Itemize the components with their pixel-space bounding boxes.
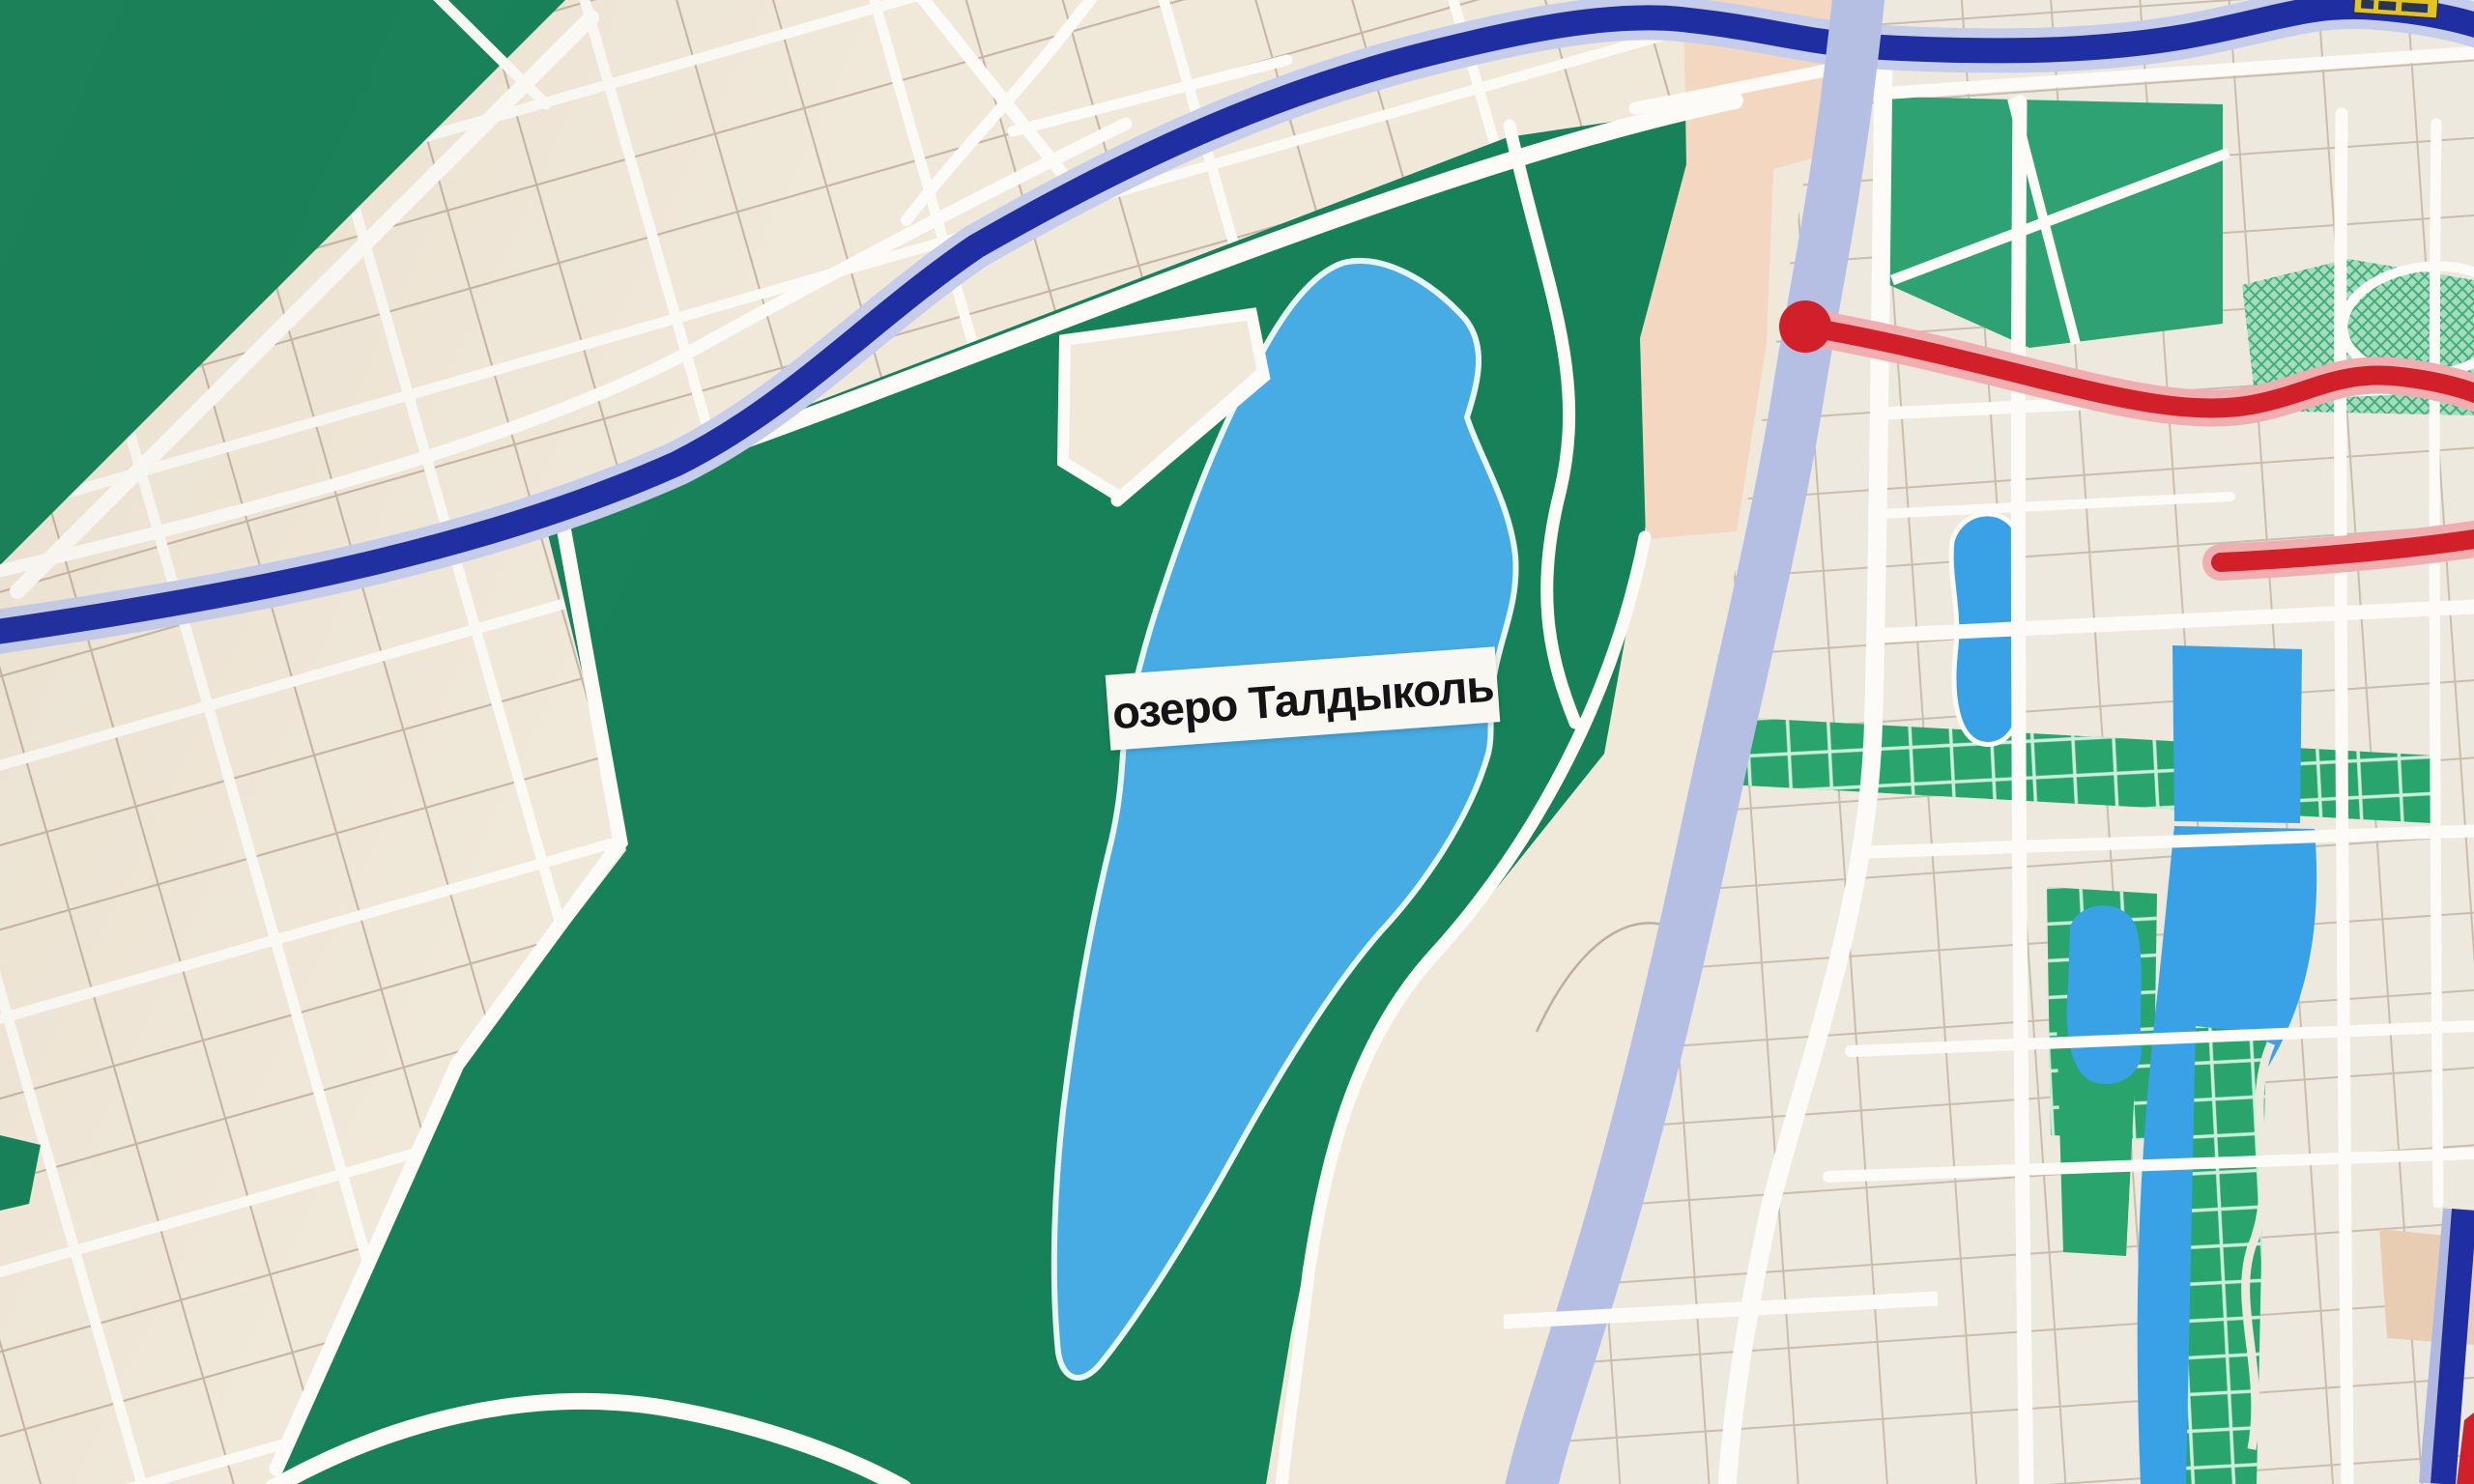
road-east-vertical-4 xyxy=(2434,124,2438,1203)
road-east-vertical-2 xyxy=(2018,102,2027,1484)
road-east-vertical-3 xyxy=(2341,114,2347,1484)
map-artwork xyxy=(0,0,2474,1484)
road-sign-glyph-1 xyxy=(2361,0,2374,9)
printed-city-map-photo: озеро Талдыколь xyxy=(0,0,2474,1484)
road-sign-glyph-3 xyxy=(2402,2,2429,13)
south-river-island-park xyxy=(2186,1026,2271,1484)
pond-large xyxy=(2172,645,2302,823)
road-sign-glyph-2 xyxy=(2378,1,2397,11)
pond-round xyxy=(2067,905,2142,1084)
transit-station-marker xyxy=(1779,300,1831,353)
